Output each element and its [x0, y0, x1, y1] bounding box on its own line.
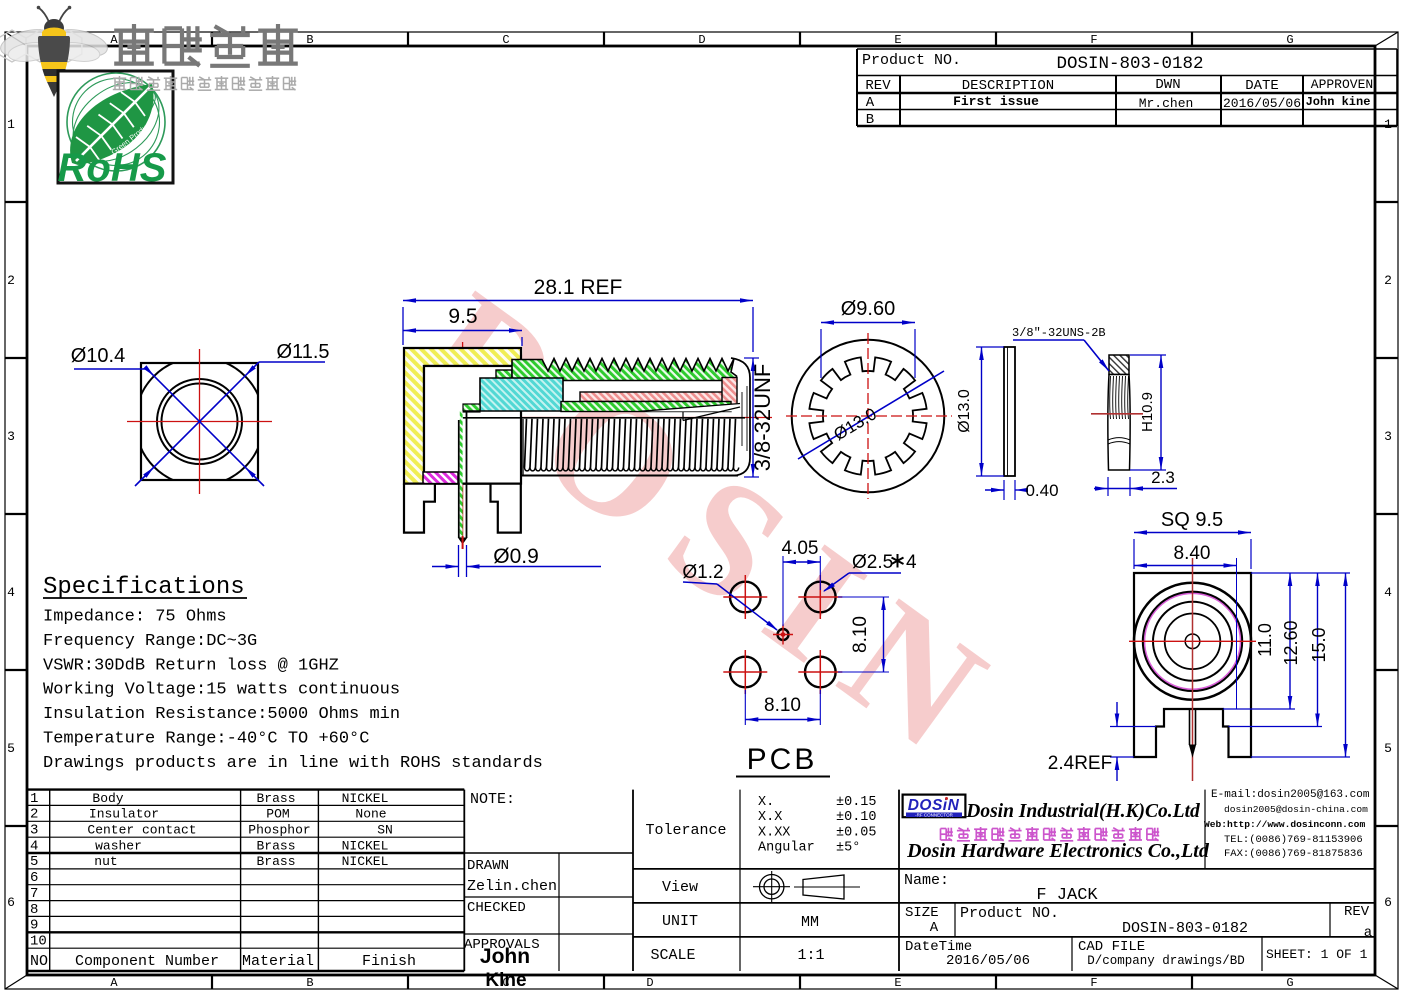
svg-text:VSWR:30DdB Return loss @ 1GHZ: VSWR:30DdB Return loss @ 1GHZ	[43, 656, 339, 675]
svg-text:2.3: 2.3	[1151, 468, 1175, 487]
svg-text:Angular: Angular	[758, 841, 815, 856]
svg-text:Material: Material	[242, 953, 314, 970]
svg-text:Product NO.: Product NO.	[862, 52, 961, 69]
svg-text:washer: washer	[95, 838, 142, 853]
svg-text:G: G	[1286, 33, 1293, 47]
svg-text:nut: nut	[94, 854, 117, 869]
svg-text:3/8″-32UNS-2B: 3/8″-32UNS-2B	[1012, 326, 1106, 340]
svg-text:2: 2	[7, 273, 15, 288]
svg-text:4: 4	[7, 585, 15, 600]
svg-text:Finish: Finish	[362, 953, 416, 970]
svg-text:4: 4	[906, 552, 917, 573]
svg-text:15.0: 15.0	[1309, 627, 1329, 662]
svg-text:UNIT: UNIT	[662, 913, 698, 930]
svg-text:F JACK: F JACK	[1036, 886, 1098, 905]
svg-text:Center contact: Center contact	[87, 823, 196, 838]
svg-text:None: None	[355, 807, 386, 822]
svg-text:0.40: 0.40	[1025, 481, 1058, 500]
svg-text:Brass: Brass	[256, 838, 295, 853]
svg-text:E: E	[894, 33, 901, 47]
svg-text:8.10: 8.10	[850, 616, 871, 653]
svg-text:Ø1.2: Ø1.2	[682, 562, 723, 583]
svg-text:Working Voltage:15 watts conti: Working Voltage:15 watts continuous	[43, 681, 400, 700]
svg-text:8: 8	[30, 902, 38, 918]
svg-text:First issue: First issue	[953, 94, 1039, 109]
svg-text:Body: Body	[92, 791, 123, 806]
svg-text:Dosin Industrial(H.K)Co.Ltd: Dosin Industrial(H.K)Co.Ltd	[965, 801, 1200, 822]
svg-text:5: 5	[30, 854, 38, 870]
svg-text:SQ 9.5: SQ 9.5	[1161, 509, 1223, 531]
svg-text:H10.9: H10.9	[1139, 392, 1156, 432]
svg-text:2: 2	[1384, 273, 1392, 288]
svg-text:SIZE: SIZE	[905, 905, 939, 921]
svg-text:Ø13.0: Ø13.0	[830, 404, 879, 444]
svg-text:2016/05/06: 2016/05/06	[1223, 96, 1301, 111]
svg-text:John kine: John kine	[1306, 95, 1371, 109]
svg-text:8.10: 8.10	[764, 695, 801, 716]
svg-text:4: 4	[30, 838, 38, 854]
svg-text:Component Number: Component Number	[75, 953, 219, 970]
svg-text:B: B	[866, 112, 874, 128]
svg-text:Tolerance: Tolerance	[645, 822, 726, 839]
svg-text:NOTE:: NOTE:	[470, 791, 515, 808]
svg-text:Kine: Kine	[485, 970, 526, 991]
svg-text:SN: SN	[377, 823, 393, 838]
svg-text:REV: REV	[865, 78, 891, 94]
svg-text:A: A	[930, 920, 939, 936]
svg-text:Ø10.4: Ø10.4	[71, 345, 125, 367]
svg-text:Ø0.9: Ø0.9	[493, 545, 539, 568]
svg-text:Insulation Resistance:5000 Ohm: Insulation Resistance:5000 Ohms min	[43, 705, 400, 724]
svg-text:D: D	[698, 33, 705, 47]
svg-text:1: 1	[1384, 117, 1392, 132]
svg-text:Drawings products are in line: Drawings products are in line with ROHS …	[43, 754, 543, 773]
svg-text:B: B	[306, 33, 313, 47]
svg-text:POM: POM	[266, 807, 289, 822]
svg-text:F: F	[1090, 976, 1097, 990]
svg-text:Temperature Range:-40°C TO +60: Temperature Range:-40°C TO +60°C	[43, 730, 369, 749]
svg-text:1: 1	[30, 791, 38, 807]
svg-text:F: F	[1090, 33, 1097, 47]
svg-text:View: View	[662, 879, 698, 896]
svg-text:4: 4	[1384, 585, 1392, 600]
svg-text:12.60: 12.60	[1281, 620, 1301, 665]
svg-text:6: 6	[1384, 895, 1392, 910]
svg-text:1:1: 1:1	[797, 947, 824, 964]
svg-text:CAD FILE: CAD FILE	[1078, 939, 1145, 955]
svg-text:3: 3	[7, 429, 15, 444]
svg-text:Brass: Brass	[256, 791, 295, 806]
svg-text:REV: REV	[1344, 904, 1370, 920]
svg-text:TEL:(0086)769-81153906: TEL:(0086)769-81153906	[1224, 834, 1363, 846]
svg-text:PCB: PCB	[747, 743, 818, 776]
svg-text:Name:: Name:	[904, 872, 949, 889]
svg-text:E: E	[894, 976, 901, 990]
svg-text:28.1 REF: 28.1 REF	[534, 276, 623, 299]
svg-text:±0.10: ±0.10	[836, 810, 877, 825]
svg-text:4.05: 4.05	[782, 538, 819, 559]
svg-text:Ø11.5: Ø11.5	[277, 341, 330, 363]
svg-text:G: G	[1286, 976, 1293, 990]
svg-text:SCALE: SCALE	[650, 947, 695, 964]
svg-text:DWN: DWN	[1155, 77, 1180, 93]
svg-text:CHECKED: CHECKED	[467, 900, 526, 916]
svg-text:Insulator: Insulator	[89, 807, 159, 822]
svg-text:FAX:(0086)769-81875836: FAX:(0086)769-81875836	[1224, 848, 1363, 860]
svg-text:Web:http://www.dosinconn.com: Web:http://www.dosinconn.com	[1204, 819, 1365, 830]
svg-text:DOSIN: DOSIN	[388, 257, 1040, 800]
svg-text:±5°: ±5°	[836, 841, 860, 856]
svg-text:6: 6	[30, 870, 38, 886]
svg-text:Specifications: Specifications	[43, 574, 245, 601]
svg-text:NO: NO	[30, 953, 48, 970]
svg-text:3/8-32UNF: 3/8-32UNF	[750, 364, 775, 472]
svg-text:3: 3	[1384, 429, 1392, 444]
svg-text:7: 7	[30, 886, 38, 902]
svg-text:Ø2.5: Ø2.5	[852, 552, 893, 573]
svg-text:5: 5	[7, 741, 15, 756]
svg-text:6: 6	[7, 895, 15, 910]
svg-text:9.5: 9.5	[448, 305, 477, 328]
svg-text:8.40: 8.40	[1174, 543, 1211, 564]
svg-text:D: D	[646, 976, 653, 990]
svg-text:DESCRIPTION: DESCRIPTION	[962, 78, 1054, 94]
svg-text:Mr.chen: Mr.chen	[1139, 96, 1194, 111]
svg-text:DRAWN: DRAWN	[467, 858, 509, 874]
svg-text:A: A	[866, 95, 875, 111]
svg-text:Ø13.0: Ø13.0	[956, 389, 973, 433]
svg-text:MM: MM	[801, 914, 819, 931]
svg-text:NICKEL: NICKEL	[342, 838, 389, 853]
svg-text:1: 1	[7, 117, 15, 132]
svg-text:5: 5	[1384, 741, 1392, 756]
svg-text:NICKEL: NICKEL	[342, 854, 389, 869]
svg-text:SHEET: 1 OF 1: SHEET: 1 OF 1	[1266, 947, 1368, 962]
svg-text:C: C	[502, 33, 509, 47]
svg-text:10: 10	[30, 934, 47, 950]
svg-text:a: a	[1364, 925, 1372, 941]
svg-text:NICKEL: NICKEL	[342, 791, 389, 806]
svg-text:E-mail:dosin2005@163.com: E-mail:dosin2005@163.com	[1211, 789, 1370, 801]
svg-text:DOSIN-803-0182: DOSIN-803-0182	[1056, 54, 1203, 74]
svg-text:Ø9.60: Ø9.60	[841, 298, 895, 320]
svg-text:Brass: Brass	[256, 854, 295, 869]
svg-text:-RF CONNECTOR: -RF CONNECTOR	[915, 813, 953, 818]
svg-text:DATE: DATE	[1245, 78, 1279, 94]
svg-text:±0.15: ±0.15	[836, 795, 877, 810]
svg-text:John: John	[480, 945, 530, 968]
svg-text:X.X: X.X	[758, 810, 782, 825]
svg-text:DOSIN-803-0182: DOSIN-803-0182	[1122, 920, 1248, 937]
svg-text:X.XX: X.XX	[758, 825, 790, 840]
svg-text:2.4REF: 2.4REF	[1048, 753, 1112, 774]
svg-text:Zelin.chen: Zelin.chen	[467, 878, 557, 895]
svg-text:3: 3	[30, 823, 38, 839]
svg-text:Dosin Hardware Electronics Co.: Dosin Hardware Electronics Co.,Ltd	[906, 840, 1210, 862]
svg-text:dosin2005@dosin-china.com: dosin2005@dosin-china.com	[1224, 804, 1368, 815]
svg-text:±0.05: ±0.05	[836, 825, 877, 840]
svg-text:11.0: 11.0	[1255, 623, 1275, 657]
svg-text:A: A	[110, 976, 118, 990]
svg-text:2016/05/06: 2016/05/06	[946, 953, 1030, 969]
svg-text:B: B	[306, 976, 313, 990]
svg-text:Frequency Range:DC~3G: Frequency Range:DC~3G	[43, 632, 257, 651]
svg-text:Impedance: 75 Ohms: Impedance: 75 Ohms	[43, 608, 227, 627]
svg-text:DOSiN: DOSiN	[908, 797, 960, 814]
svg-text:A: A	[110, 33, 118, 47]
svg-text:X.: X.	[758, 795, 774, 810]
svg-text:2: 2	[30, 807, 38, 823]
svg-text:Product NO.: Product NO.	[960, 905, 1059, 922]
svg-text:D/company drawings/BD: D/company drawings/BD	[1087, 954, 1245, 968]
svg-text:RoHS: RoHS	[58, 146, 167, 190]
svg-text:9: 9	[30, 918, 38, 934]
svg-text:APPROVEN: APPROVEN	[1311, 77, 1373, 92]
svg-text:Phosphor: Phosphor	[248, 823, 310, 838]
